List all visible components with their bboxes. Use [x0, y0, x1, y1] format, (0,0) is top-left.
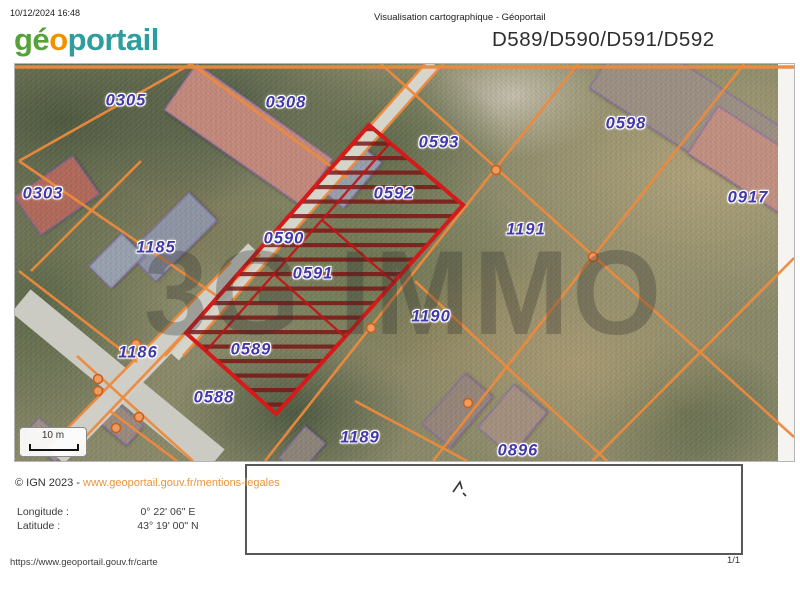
mentions-legales-link[interactable]: www.geoportail.gouv.fr/mentions-legales [83, 477, 280, 489]
pen-scribble-mark [450, 480, 470, 500]
parcel-label-1191: 1191 [506, 221, 545, 240]
parcel-label-0588: 0588 [194, 389, 235, 408]
longitude-row: Longitude : 0° 22' 06" E [17, 505, 228, 519]
parcel-label-0917: 0917 [728, 189, 769, 208]
scale-bar [29, 444, 79, 451]
parcel-label-0308: 0308 [266, 94, 307, 113]
parcel-label-0590: 0590 [264, 230, 305, 249]
parcel-label-0592: 0592 [374, 185, 415, 204]
cadastral-map: 3G IMMO 03050308030311850593059205900591… [14, 63, 795, 462]
parcel-label-1186: 1186 [118, 344, 157, 363]
parcel-label-0896: 0896 [498, 442, 539, 461]
logo-part-portail: portail [68, 22, 159, 57]
parcel-label-0303: 0303 [23, 185, 64, 204]
logo-part-o: o [49, 22, 67, 57]
longitude-label: Longitude : [17, 505, 105, 519]
parcels-title: D589/D590/D591/D592 [492, 28, 715, 52]
parcel-label-1190: 1190 [411, 308, 450, 327]
document-title: Visualisation cartographique - Géoportai… [374, 12, 545, 23]
parcel-label-0598: 0598 [606, 115, 647, 134]
photo-edge-strip [778, 64, 794, 461]
parcel-label-0589: 0589 [231, 341, 272, 360]
coordinates-block: Longitude : 0° 22' 06" E Latitude : 43° … [17, 505, 228, 533]
print-timestamp: 10/12/2024 16:48 [10, 8, 80, 18]
parcel-label-0305: 0305 [106, 92, 147, 111]
copyright-text: © IGN 2023 - [15, 477, 83, 489]
scale-label: 10 m [20, 430, 86, 441]
scale-indicator: 10 m [19, 427, 87, 457]
latitude-row: Latitude : 43° 19' 00" N [17, 519, 228, 533]
longitude-value: 0° 22' 06" E [108, 505, 228, 519]
page-indicator: 1/1 [727, 555, 740, 566]
copyright-line: © IGN 2023 - www.geoportail.gouv.fr/ment… [15, 477, 280, 489]
parcel-label-0591: 0591 [293, 265, 334, 284]
parcel-label-1185: 1185 [136, 239, 175, 258]
geoportail-print-page: 10/12/2024 16:48 Visualisation cartograp… [0, 0, 800, 600]
latitude-value: 43° 19' 00" N [108, 519, 228, 533]
latitude-label: Latitude : [17, 519, 105, 533]
cadastral-overlay [15, 64, 794, 461]
parcel-label-0593: 0593 [419, 134, 460, 153]
logo-part-geo: gé [14, 22, 49, 57]
source-url[interactable]: https://www.geoportail.gouv.fr/carte [10, 557, 158, 568]
geoportail-logo: géoportail [14, 22, 159, 58]
parcel-label-1189: 1189 [340, 429, 379, 448]
notes-box [245, 464, 743, 555]
